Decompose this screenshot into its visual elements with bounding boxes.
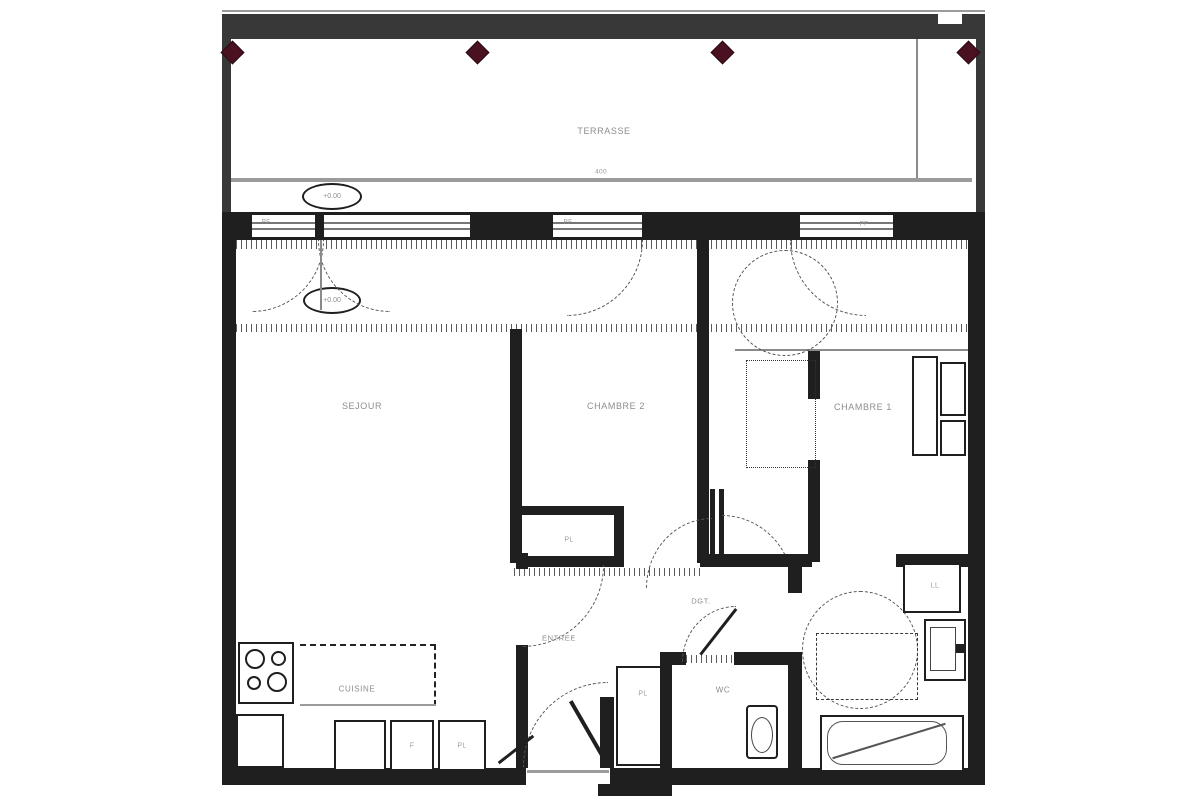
exterior-wall-right (968, 212, 985, 785)
room-label-cuisine: CUISINE (339, 685, 376, 694)
entrance-stoop (598, 784, 672, 796)
grid-marker-icon (465, 40, 489, 64)
door-arc-dgt-left (646, 518, 712, 588)
wall-chambre1-left-lower (808, 460, 820, 562)
bed (912, 356, 938, 456)
level-marker-label: +0.00 (323, 193, 341, 200)
kitchen-counter (236, 714, 284, 768)
terrace-top-edge-line (222, 10, 985, 12)
technical-duct (334, 720, 386, 771)
door-arc-entrance (523, 682, 608, 767)
window-pf1-mullion (315, 215, 324, 237)
door-arc-chambre1 (732, 250, 838, 356)
wall-sejour-chambre2 (510, 329, 522, 563)
toilet-bowl (751, 717, 773, 753)
room-label-chambre2: CHAMBRE 2 (587, 401, 645, 411)
window-pf3 (800, 215, 893, 237)
closet-label-pl-chambre2: PL (564, 537, 573, 544)
window-label-pf1: PF (262, 219, 271, 226)
door-meeting-line (320, 240, 322, 310)
door-arc-dgt-right (722, 515, 794, 590)
closet-label-pl-kitchen: PL (457, 743, 466, 750)
terrace-right-wall (976, 14, 985, 214)
room-label-chambre1: CHAMBRE 1 (834, 402, 892, 412)
window-label-pf2: PF (564, 219, 573, 226)
terrace-divider-line (916, 39, 918, 180)
nightstand (940, 420, 966, 456)
wall-wc-top-right (734, 652, 798, 665)
wardrobe-chambre1 (746, 360, 816, 468)
beam-notch (938, 14, 962, 24)
dimension-terrace: 400 (595, 169, 607, 176)
entrance-threshold (527, 770, 609, 773)
floor-plan: TERRASSE 400 +0.00 +0.00 PF PF PF PL (0, 0, 1200, 800)
terrace-bottom-edge-line (231, 178, 972, 182)
door-arc-wc (682, 606, 736, 662)
interior-beam-hatch (236, 324, 968, 332)
window-pf1 (252, 215, 470, 237)
exterior-wall-left (222, 212, 236, 785)
closet-pl-hall (616, 666, 662, 766)
wall-chambre2-dgt (697, 240, 709, 563)
terrace-left-wall (222, 39, 231, 212)
wall-bath-left-upper (788, 563, 802, 593)
kitchen-outline (300, 644, 436, 706)
shower-outline (816, 633, 918, 700)
room-label-wc: WC (716, 686, 731, 695)
nightstand (940, 362, 966, 416)
room-label-dgt: DGT. (691, 597, 710, 606)
room-label-sejour: SEJOUR (342, 401, 382, 411)
appliance-label-fridge: F (410, 743, 415, 750)
sink-basin (930, 627, 956, 671)
door-arc-window2 (567, 240, 643, 316)
closet-label-pl-hall: PL (638, 691, 647, 698)
sink-tap (956, 644, 966, 653)
level-marker-label: +0.00 (323, 297, 341, 304)
grid-marker-icon (710, 40, 734, 64)
appliance-label-washer: LL (931, 583, 939, 590)
kitchen-counter-line (300, 704, 436, 706)
level-marker-terrace: +0.00 (302, 183, 362, 210)
closet-pl-chambre2-top (522, 506, 624, 515)
room-label-terrasse: TERRASSE (577, 126, 630, 136)
terrace-top-beam (222, 14, 985, 39)
room-label-entree: ENTREE (542, 634, 576, 643)
window-label-pf3: PF (860, 221, 869, 228)
stove-icon (238, 642, 294, 704)
wall-bath-left-lower (788, 652, 802, 768)
